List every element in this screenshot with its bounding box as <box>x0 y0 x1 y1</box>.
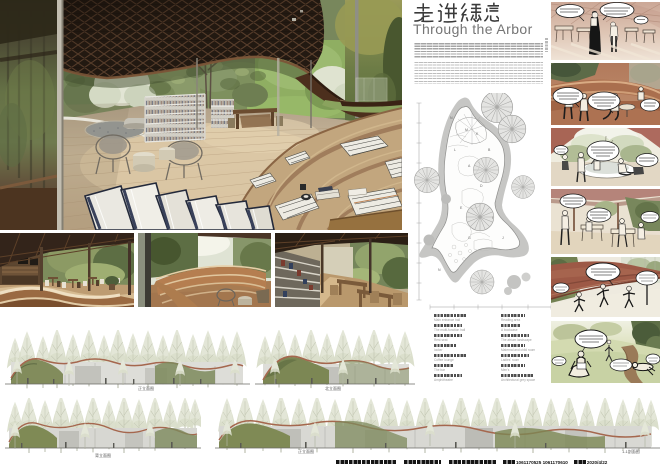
svg-text:L: L <box>454 148 456 152</box>
svg-text:G: G <box>468 236 471 240</box>
svg-text:J: J <box>502 236 504 240</box>
svg-text:I: I <box>492 216 493 220</box>
svg-text:M: M <box>465 128 468 132</box>
svg-text:N: N <box>438 268 441 272</box>
